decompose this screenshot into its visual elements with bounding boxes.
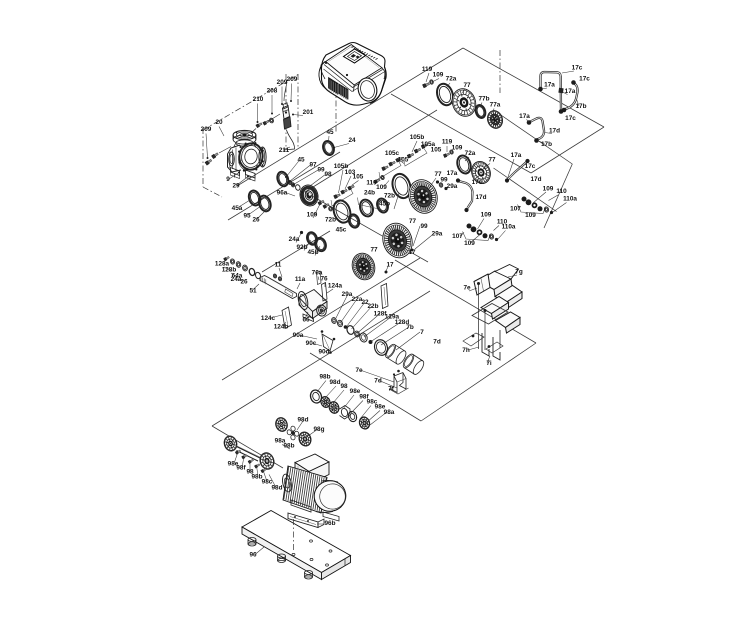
svg-text:24a: 24a: [289, 236, 300, 243]
svg-text:7b: 7b: [406, 324, 414, 331]
svg-text:45: 45: [326, 129, 334, 136]
svg-text:110a: 110a: [502, 224, 516, 231]
svg-text:109: 109: [376, 184, 387, 191]
svg-text:209: 209: [201, 126, 212, 133]
svg-text:98d: 98d: [297, 417, 308, 424]
svg-text:90c: 90c: [306, 340, 317, 347]
svg-text:17a: 17a: [447, 170, 458, 177]
svg-text:7: 7: [420, 329, 424, 336]
svg-text:26: 26: [252, 217, 260, 224]
svg-text:45b: 45b: [379, 201, 390, 208]
svg-text:119: 119: [422, 66, 433, 73]
svg-text:77: 77: [488, 157, 496, 164]
svg-text:24: 24: [348, 137, 356, 144]
svg-text:110: 110: [556, 188, 567, 195]
svg-text:17a: 17a: [544, 82, 555, 89]
svg-text:98a: 98a: [384, 409, 395, 416]
svg-text:66: 66: [302, 317, 310, 324]
svg-text:29a: 29a: [447, 183, 458, 190]
svg-text:17: 17: [408, 249, 416, 256]
svg-text:109: 109: [481, 212, 492, 219]
svg-text:17d: 17d: [475, 194, 486, 201]
svg-text:17d: 17d: [530, 176, 541, 183]
svg-text:17a: 17a: [519, 113, 530, 120]
svg-text:17c: 17c: [525, 163, 536, 170]
svg-text:26: 26: [240, 279, 248, 286]
svg-text:209: 209: [287, 76, 298, 83]
svg-text:105: 105: [431, 147, 442, 154]
svg-text:107: 107: [510, 206, 521, 213]
svg-text:72a: 72a: [446, 76, 457, 83]
svg-text:17a: 17a: [511, 152, 522, 159]
svg-text:77b: 77b: [478, 96, 489, 103]
svg-text:72b: 72b: [325, 217, 336, 224]
svg-text:105: 105: [353, 174, 364, 181]
svg-text:45c: 45c: [336, 227, 347, 234]
svg-text:17c: 17c: [472, 179, 483, 186]
svg-text:99: 99: [420, 223, 428, 230]
svg-text:208: 208: [267, 88, 278, 95]
svg-text:77: 77: [463, 82, 471, 89]
svg-text:109: 109: [525, 212, 536, 219]
svg-text:17b: 17b: [541, 141, 552, 148]
svg-text:98g: 98g: [313, 426, 324, 433]
svg-text:17c: 17c: [565, 115, 576, 122]
svg-text:210: 210: [253, 96, 264, 103]
svg-text:11a: 11a: [295, 276, 306, 283]
svg-text:98d: 98d: [329, 379, 340, 386]
svg-text:76: 76: [320, 276, 328, 283]
svg-text:7i: 7i: [486, 360, 492, 367]
svg-text:45b: 45b: [307, 249, 318, 256]
svg-text:90d: 90d: [318, 349, 329, 356]
svg-text:124a: 124a: [328, 283, 343, 290]
svg-text:51: 51: [249, 288, 257, 295]
svg-text:7h: 7h: [462, 347, 470, 354]
svg-text:7g: 7g: [515, 269, 523, 276]
svg-text:17c: 17c: [572, 65, 583, 72]
svg-text:72a: 72a: [465, 150, 476, 157]
svg-text:17c: 17c: [579, 76, 590, 83]
svg-text:45a: 45a: [232, 205, 243, 212]
svg-text:109: 109: [464, 240, 475, 247]
svg-text:105: 105: [398, 157, 409, 164]
svg-text:98: 98: [340, 383, 348, 390]
svg-text:45: 45: [297, 157, 305, 164]
svg-text:77: 77: [370, 247, 378, 254]
svg-text:77: 77: [409, 218, 417, 225]
svg-text:109: 109: [307, 212, 318, 219]
svg-text:11: 11: [275, 262, 282, 269]
svg-text:201: 201: [303, 109, 314, 116]
svg-text:107: 107: [452, 233, 463, 240]
svg-text:109: 109: [433, 72, 444, 79]
svg-text:109: 109: [543, 186, 554, 193]
svg-text:7d: 7d: [433, 339, 441, 346]
svg-text:24b: 24b: [364, 190, 375, 197]
svg-text:124b: 124b: [274, 324, 289, 331]
svg-text:124c: 124c: [261, 315, 276, 322]
svg-text:96b: 96b: [324, 520, 335, 527]
svg-text:9: 9: [226, 176, 230, 183]
svg-text:109: 109: [452, 145, 463, 152]
svg-text:110a: 110a: [563, 196, 577, 203]
svg-text:20: 20: [215, 119, 223, 126]
svg-text:105b: 105b: [410, 134, 425, 141]
svg-text:98d: 98d: [271, 485, 282, 492]
svg-text:72b: 72b: [384, 193, 395, 200]
svg-text:98f: 98f: [236, 465, 246, 472]
svg-text:17b: 17b: [575, 103, 586, 110]
svg-text:77a: 77a: [490, 102, 501, 109]
svg-text:96: 96: [249, 552, 257, 559]
